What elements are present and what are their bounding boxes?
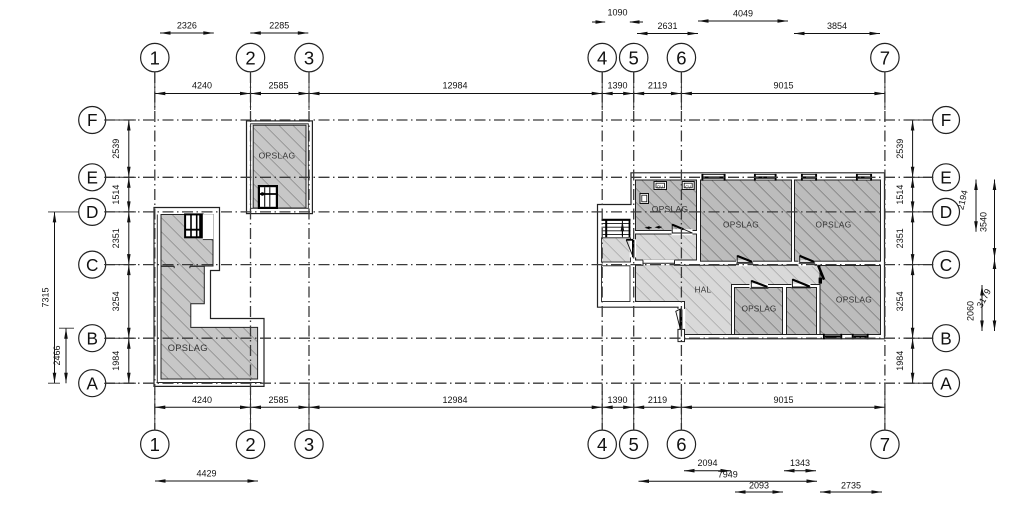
svg-text:B: B bbox=[940, 328, 951, 348]
svg-text:OPSLAG: OPSLAG bbox=[168, 343, 208, 353]
svg-text:1390: 1390 bbox=[607, 395, 627, 405]
svg-text:2539: 2539 bbox=[895, 139, 905, 159]
svg-text:5: 5 bbox=[629, 434, 639, 455]
svg-text:2585: 2585 bbox=[268, 81, 288, 91]
svg-text:2631: 2631 bbox=[657, 21, 677, 31]
svg-text:2735: 2735 bbox=[841, 481, 861, 491]
svg-text:2285: 2285 bbox=[269, 21, 289, 31]
svg-text:F: F bbox=[941, 110, 952, 130]
svg-text:2351: 2351 bbox=[895, 228, 905, 248]
svg-text:12984: 12984 bbox=[442, 395, 467, 405]
svg-text:C: C bbox=[940, 255, 952, 275]
svg-text:3854: 3854 bbox=[827, 21, 847, 31]
svg-text:2466: 2466 bbox=[52, 345, 62, 365]
svg-text:4429: 4429 bbox=[196, 469, 216, 479]
svg-text:1090: 1090 bbox=[607, 7, 627, 17]
svg-text:1343: 1343 bbox=[790, 458, 810, 468]
svg-text:3: 3 bbox=[304, 47, 314, 68]
svg-text:OPSLAG: OPSLAG bbox=[816, 220, 852, 230]
svg-text:2093: 2093 bbox=[749, 481, 769, 491]
svg-text:HAL: HAL bbox=[695, 286, 712, 295]
svg-text:A: A bbox=[86, 373, 98, 393]
svg-text:2119: 2119 bbox=[648, 395, 667, 405]
svg-text:OPSLAG: OPSLAG bbox=[836, 295, 872, 305]
svg-text:1: 1 bbox=[150, 47, 160, 68]
svg-text:D: D bbox=[86, 202, 98, 222]
svg-text:2326: 2326 bbox=[177, 21, 197, 31]
svg-text:1984: 1984 bbox=[895, 351, 905, 371]
svg-text:OPSLAG: OPSLAG bbox=[723, 220, 759, 230]
svg-text:2060: 2060 bbox=[966, 301, 976, 321]
svg-text:F: F bbox=[87, 110, 98, 130]
svg-text:7315: 7315 bbox=[41, 287, 51, 307]
svg-text:6: 6 bbox=[676, 434, 686, 455]
svg-text:OPSLAG: OPSLAG bbox=[742, 305, 777, 314]
svg-text:2351: 2351 bbox=[111, 228, 121, 248]
svg-text:1: 1 bbox=[150, 434, 160, 455]
svg-text:7949: 7949 bbox=[718, 470, 738, 480]
svg-text:7: 7 bbox=[880, 434, 890, 455]
svg-text:3179: 3179 bbox=[975, 287, 993, 309]
svg-text:9015: 9015 bbox=[773, 81, 793, 91]
svg-text:4: 4 bbox=[597, 434, 607, 455]
svg-text:4049: 4049 bbox=[733, 8, 753, 18]
svg-text:9015: 9015 bbox=[773, 395, 793, 405]
svg-text:DV: DV bbox=[657, 184, 663, 189]
svg-text:7: 7 bbox=[880, 47, 890, 68]
svg-text:D: D bbox=[940, 202, 952, 222]
svg-text:3540: 3540 bbox=[979, 212, 989, 232]
svg-text:2094: 2094 bbox=[697, 458, 717, 468]
svg-text:E: E bbox=[86, 167, 97, 187]
svg-text:6: 6 bbox=[676, 47, 686, 68]
svg-text:2: 2 bbox=[245, 47, 255, 68]
svg-text:3254: 3254 bbox=[111, 291, 121, 311]
svg-text:2585: 2585 bbox=[268, 395, 288, 405]
svg-text:4240: 4240 bbox=[192, 81, 212, 91]
svg-text:CV: CV bbox=[685, 184, 691, 189]
svg-text:2: 2 bbox=[245, 434, 255, 455]
svg-text:B: B bbox=[86, 328, 97, 348]
svg-text:E: E bbox=[940, 167, 951, 187]
svg-text:A: A bbox=[940, 373, 952, 393]
svg-text:OPSLAG: OPSLAG bbox=[652, 204, 689, 214]
svg-text:OPSLAG: OPSLAG bbox=[259, 151, 296, 161]
svg-text:1514: 1514 bbox=[111, 185, 121, 205]
svg-text:1390: 1390 bbox=[607, 81, 627, 91]
svg-text:C: C bbox=[86, 255, 98, 275]
svg-text:3: 3 bbox=[304, 434, 314, 455]
svg-text:4: 4 bbox=[597, 47, 607, 68]
svg-text:1984: 1984 bbox=[111, 351, 121, 371]
svg-text:2119: 2119 bbox=[648, 81, 667, 91]
svg-text:12984: 12984 bbox=[442, 81, 467, 91]
svg-text:4240: 4240 bbox=[192, 395, 212, 405]
svg-text:1514: 1514 bbox=[895, 185, 905, 205]
svg-text:2539: 2539 bbox=[111, 139, 121, 159]
svg-text:5: 5 bbox=[629, 47, 639, 68]
svg-text:3254: 3254 bbox=[895, 291, 905, 311]
